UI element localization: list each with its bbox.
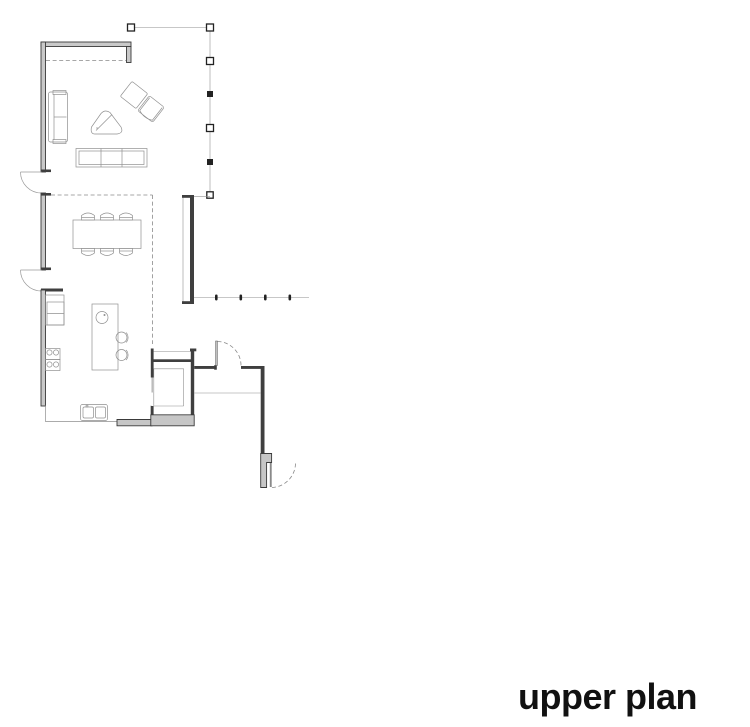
- svg-text:upper plan: upper plan: [518, 676, 697, 717]
